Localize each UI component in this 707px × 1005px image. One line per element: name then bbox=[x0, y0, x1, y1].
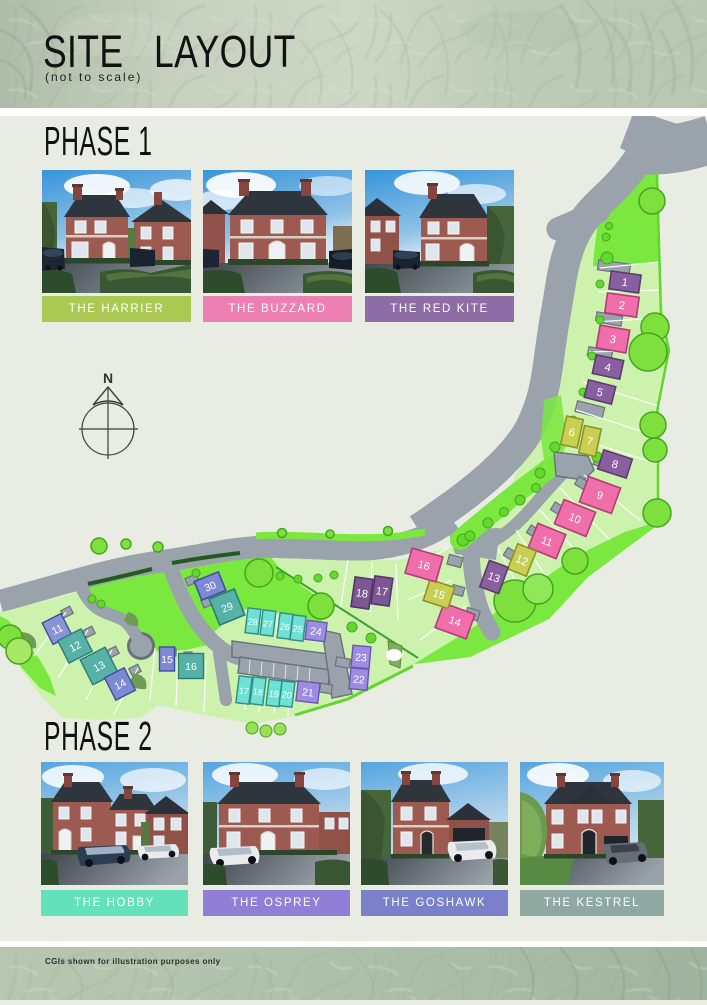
svg-text:16: 16 bbox=[185, 661, 197, 673]
svg-text:18: 18 bbox=[355, 587, 369, 601]
svg-text:23: 23 bbox=[355, 652, 368, 665]
svg-text:17: 17 bbox=[375, 585, 389, 599]
svg-text:21: 21 bbox=[301, 686, 314, 699]
svg-text:27: 27 bbox=[262, 618, 273, 629]
svg-text:22: 22 bbox=[353, 674, 366, 687]
svg-text:26: 26 bbox=[279, 621, 290, 632]
svg-text:20: 20 bbox=[281, 689, 292, 700]
svg-text:19: 19 bbox=[268, 688, 279, 699]
svg-text:28: 28 bbox=[247, 616, 258, 627]
svg-text:15: 15 bbox=[161, 654, 173, 666]
svg-text:25: 25 bbox=[292, 623, 303, 634]
svg-text:24: 24 bbox=[309, 625, 322, 638]
svg-text:18: 18 bbox=[252, 686, 263, 697]
svg-text:17: 17 bbox=[238, 685, 249, 696]
